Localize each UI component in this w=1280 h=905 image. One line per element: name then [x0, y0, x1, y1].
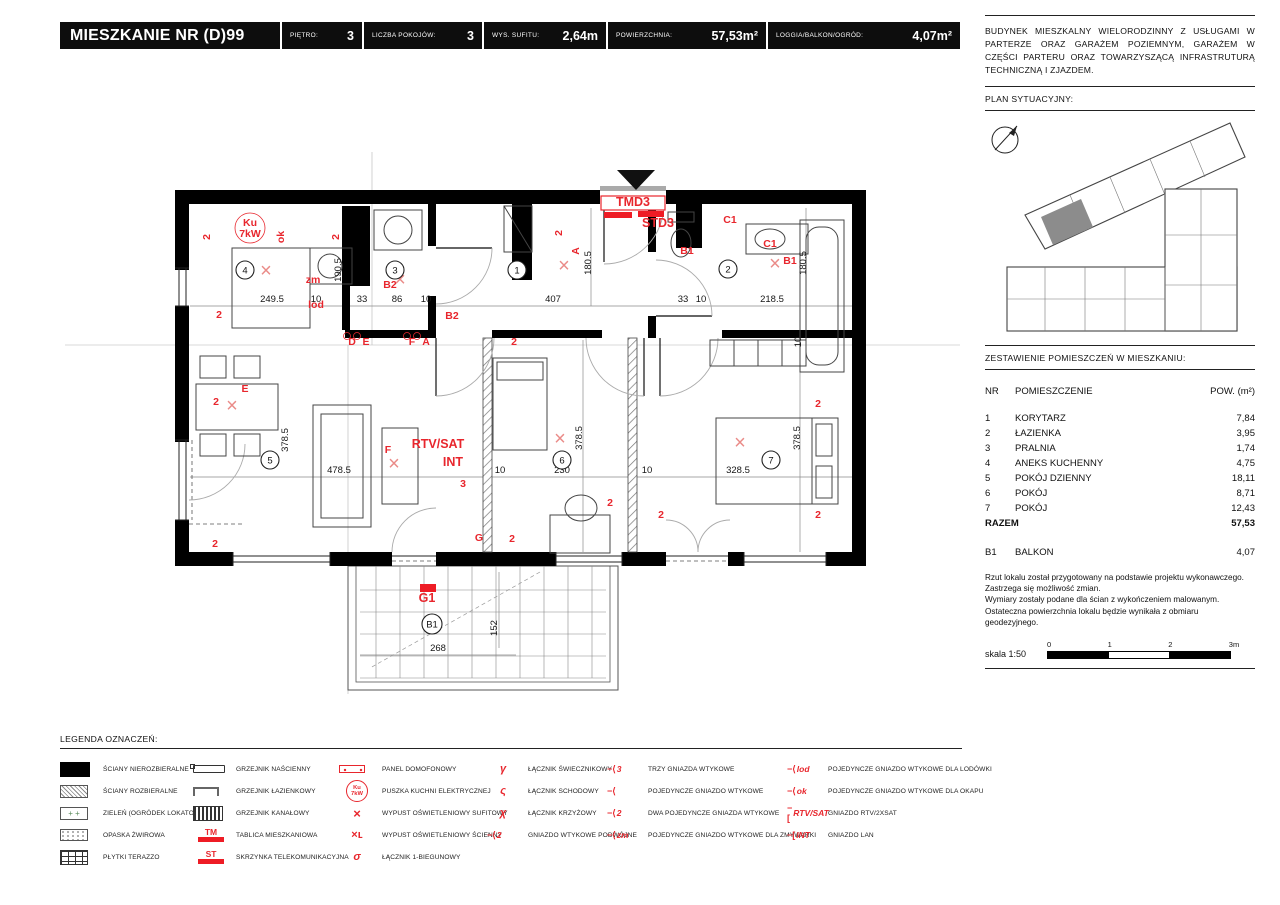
room-marker: 5	[261, 451, 279, 469]
legend-item-label: PANEL DOMOFONOWY	[382, 766, 457, 773]
switch-chandelier-icon: γ	[485, 760, 521, 778]
plan-label: 190.5	[333, 258, 344, 282]
table-row: 7POKÓJ12,43	[985, 501, 1255, 516]
table-row: 3PRALNIA1,74	[985, 441, 1255, 456]
note-line: Rzut lokalu został przygotowany na podst…	[985, 572, 1255, 583]
rooms-table-body: 1KORYTARZ7,842ŁAZIENKA3,953PRALNIA1,744A…	[985, 411, 1255, 516]
col-nr: NR	[985, 386, 1015, 397]
legend-item: χŁĄCZNIK KRZYŻOWY	[485, 802, 605, 824]
legend-column: γŁĄCZNIK ŚWIECZNIKOWYςŁĄCZNIK SCHODOWYχŁ…	[485, 758, 605, 846]
legend-item-label: TABLICA MIESZKANIOWA	[236, 832, 318, 839]
site-plan-title: PLAN SYTUACYJNY:	[985, 94, 1255, 104]
plan-label: 33	[357, 294, 368, 305]
room-nr: 2	[985, 426, 1015, 441]
plan-label: ok	[275, 231, 287, 243]
legend-item-label: POJEDYNCZE GNIAZDO WTYKOWE DLA LODÓWKI	[828, 766, 992, 773]
plan-label: 86	[392, 294, 403, 305]
room-marker: 4	[236, 261, 254, 279]
red-bar-icon: TM	[193, 826, 229, 844]
plan-label: 180.5	[583, 251, 594, 275]
plan-label: 2	[815, 509, 821, 521]
radiator-wall-icon	[193, 765, 225, 773]
legend-item-label: ŁĄCZNIK 1-BIEGUNOWY	[382, 854, 460, 861]
legend-item-label: GRZEJNIK NAŚCIENNY	[236, 766, 311, 773]
rooms-list-title: ZESTAWIENIE POMIESZCZEŃ W MIESZKANIU:	[985, 353, 1255, 363]
plan-label: G1	[419, 591, 436, 605]
svg-text:2: 2	[725, 265, 730, 276]
legend-item-label: DWA POJEDYNCZE GNIAZDA WTYKOWE	[648, 810, 779, 817]
room-nr: 5	[985, 471, 1015, 486]
room-area: 8,71	[1193, 486, 1255, 501]
room-marker: 1	[508, 261, 526, 279]
room-nr: 3	[985, 441, 1015, 456]
windows	[175, 268, 826, 566]
compass-icon	[992, 126, 1018, 153]
legend-item: TMTABLICA MIESZKANIOWA	[193, 824, 339, 846]
divider	[985, 15, 1255, 16]
switch-stairs-icon: ς	[485, 782, 521, 800]
doors	[189, 204, 730, 552]
plan-label: 180.5	[798, 251, 809, 275]
legend-item: ×ʟWYPUST OŚWIETLENIOWY ŚCIENNY	[339, 824, 485, 846]
legend-item-label: ŁĄCZNIK SCHODOWY	[528, 788, 599, 795]
plan-label: ×	[734, 432, 746, 454]
red-bar-icon: ST	[193, 848, 229, 866]
gravel-icon	[60, 829, 88, 841]
legend-item-label: SKRZYNKA TELEKOMUNIKACYJNA	[236, 854, 349, 861]
svg-text:4: 4	[242, 266, 247, 277]
legend-item: γŁĄCZNIK ŚWIECZNIKOWY	[485, 758, 605, 780]
plan-label: E	[241, 383, 248, 395]
plan-label: 249.5	[260, 294, 284, 305]
plan-label: 2	[658, 509, 664, 521]
socket-sq-icon: −[RTV/SAT	[785, 804, 821, 822]
wall-light-icon: ×ʟ	[339, 826, 375, 844]
socket-icon: −⟨ok	[785, 782, 821, 800]
room-name: POKÓJ DZIENNY	[1015, 471, 1193, 486]
socket-icon: −⟨zm	[605, 826, 641, 844]
legend-item-label: ŁĄCZNIK KRZYŻOWY	[528, 810, 597, 817]
svg-text:7: 7	[768, 456, 773, 467]
legend-column: −⟨lodPOJEDYNCZE GNIAZDO WTYKOWE DLA LODÓ…	[785, 758, 962, 846]
table-row: 5POKÓJ DZIENNY18,11	[985, 471, 1255, 486]
scale-label: skala 1:50	[985, 649, 1047, 660]
legend: LEGENDA OZNACZEŃ: ŚCIANY NIEROZBIERALNEŚ…	[60, 734, 962, 868]
col-name: POMIESZCZENIE	[1015, 386, 1193, 397]
plan-label: 218.5	[760, 294, 784, 305]
plan-label: ×	[260, 260, 272, 282]
socket-icon: −⟨lod	[785, 760, 821, 778]
balcony-name: BALKON	[1015, 545, 1193, 560]
legend-item: ŚCIANY NIEROZBIERALNE	[60, 758, 193, 780]
legend-column: PANEL DOMOFONOWYKu 7kWPUSZKA KUCHNI ELEK…	[339, 758, 485, 868]
legend-item: −[INTGNIAZDO LAN	[785, 824, 962, 846]
divider	[985, 668, 1255, 669]
balcony-value: 4,07	[1193, 545, 1255, 560]
tm-bar	[604, 212, 632, 218]
legend-item: GRZEJNIK KANAŁOWY	[193, 802, 339, 824]
col-area: POW. (m²)	[1193, 386, 1255, 397]
legend-item: −⟨POJEDYNCZE GNIAZDO WTYKOWE	[605, 780, 785, 802]
total-label: RAZEM	[985, 516, 1193, 531]
room-name: ŁAZIENKA	[1015, 426, 1193, 441]
table-row: 1KORYTARZ7,84	[985, 411, 1255, 426]
plan-label: C1	[723, 214, 737, 226]
plan-label: 328.5	[726, 465, 750, 476]
legend-item: Ku 7kWPUSZKA KUCHNI ELEKTRYCZNEJ	[339, 780, 485, 802]
plan-label: 2	[216, 309, 222, 321]
legend-columns: ŚCIANY NIEROZBIERALNEŚCIANY ROZBIERALNEZ…	[60, 758, 962, 868]
plan-label: 2	[607, 497, 613, 509]
plan-label: A	[570, 247, 582, 255]
room-nr: 1	[985, 411, 1015, 426]
room-marker: 2	[719, 260, 737, 278]
plan-label: 10	[696, 294, 707, 305]
plan-label: TMD3	[616, 195, 650, 209]
legend-item-label: GRZEJNIK KANAŁOWY	[236, 810, 310, 817]
kitchen-box-icon: Ku 7kW	[339, 782, 375, 800]
room-area: 7,84	[1193, 411, 1255, 426]
balcony	[348, 566, 618, 690]
room-area: 1,74	[1193, 441, 1255, 456]
plan-label: 33	[678, 294, 689, 305]
legend-item: PŁYTKI TERAZZO	[60, 846, 193, 868]
plan-label: 2	[553, 230, 565, 236]
scale-tick: 1	[1108, 640, 1112, 649]
table-row: 2ŁAZIENKA3,95	[985, 426, 1255, 441]
plan-label: B1	[680, 245, 694, 257]
room-area: 18,11	[1193, 471, 1255, 486]
room-area: 3,95	[1193, 426, 1255, 441]
plan-label: 2	[509, 533, 515, 545]
room-marker: 7	[762, 451, 780, 469]
radiator-bath-icon	[193, 787, 219, 796]
radiator-channel-icon	[193, 806, 223, 821]
socket-icon: −⟨2	[485, 826, 521, 844]
room-name: PRALNIA	[1015, 441, 1193, 456]
room-marker: B1	[422, 614, 442, 634]
divider	[985, 86, 1255, 87]
rooms-table-header: NR POMIESZCZENIE POW. (m²)	[985, 386, 1255, 397]
switch-cross-icon: χ	[485, 804, 521, 822]
plan-label: 10	[421, 294, 432, 305]
plan-label: lod	[308, 299, 324, 311]
plan-label: zm	[306, 274, 321, 286]
legend-item: ×WYPUST OŚWIETLENIOWY SUFITOWY	[339, 802, 485, 824]
plan-label: 407	[545, 294, 561, 305]
note-line: Ostateczna powierzchnia lokalu będzie wy…	[985, 606, 1255, 617]
scale-tick: 3m	[1229, 640, 1239, 649]
legend-item: ŚCIANY ROZBIERALNE	[60, 780, 193, 802]
note-line: Zastrzega się możliwość zmian.	[985, 583, 1255, 594]
plan-label: ×	[558, 255, 570, 277]
legend-item-label: PUSZKA KUCHNI ELEKTRYCZNEJ	[382, 788, 491, 795]
plan-label: E	[362, 336, 369, 348]
legend-item: ςŁĄCZNIK SCHODOWY	[485, 780, 605, 802]
plan-label: 2	[212, 538, 218, 550]
plan-label: 2	[213, 396, 219, 408]
svg-text:B1: B1	[426, 620, 438, 631]
legend-item: GRZEJNIK ŁAZIENKOWY	[193, 780, 339, 802]
plan-label: 2	[330, 234, 342, 240]
socket-sq-icon: −[INT	[785, 826, 821, 844]
legend-item: OPASKA ŻWIROWA	[60, 824, 193, 846]
terrazzo-icon	[60, 850, 88, 865]
scale-tick: 0	[1047, 640, 1051, 649]
plan-label: 3	[460, 478, 466, 490]
legend-item-label: TRZY GNIAZDA WTYKOWE	[648, 766, 735, 773]
note-line: geodezyjnego.	[985, 617, 1255, 628]
room-marker: 6	[553, 451, 571, 469]
socket-icon: −⟨	[605, 782, 641, 800]
legend-item: −[RTV/SATGNIAZDO RTV/2XSAT	[785, 802, 962, 824]
disclaimer-notes: Rzut lokalu został przygotowany na podst…	[985, 572, 1255, 629]
socket-icon: −⟨3	[605, 760, 641, 778]
legend-item: −⟨okPOJEDYNCZE GNIAZDO WTYKOWE DLA OKAPU	[785, 780, 962, 802]
plan-label: D	[348, 336, 356, 348]
divider	[985, 369, 1255, 370]
scale-row: skala 1:50 0123m	[985, 638, 1255, 660]
floor-plan-sheet: MIESZKANIE NR (D)99 PIĘTRO: 3 LICZBA POK…	[0, 0, 1280, 905]
plan-label: ×	[226, 395, 238, 417]
plan-label: RTV/SAT	[412, 437, 465, 451]
legend-item-label: GNIAZDO RTV/2XSAT	[828, 810, 897, 817]
note-line: Wymiary zostały podane dla ścian z wykoń…	[985, 594, 1255, 605]
room-area: 12,43	[1193, 501, 1255, 516]
balcony-row: B1 BALKON 4,07	[985, 545, 1255, 560]
divider	[985, 110, 1255, 111]
site-plan	[985, 115, 1255, 343]
legend-item: −⟨zmPOJEDYNCZE GNIAZDO WTYKOWE DLA ZMYWA…	[605, 824, 785, 846]
plan-label: A	[422, 336, 430, 348]
room-marker: 3	[386, 261, 404, 279]
plan-label: 268	[430, 643, 446, 654]
plan-label: B1	[783, 255, 797, 267]
scale-tick: 2	[1168, 640, 1172, 649]
plan-label: 2	[815, 398, 821, 410]
legend-item-label: GRZEJNIK ŁAZIENKOWY	[236, 788, 316, 795]
building-description: BUDYNEK MIESZKALNY WIELORODZINNY Z USŁUG…	[985, 25, 1255, 77]
scale-segments	[1047, 651, 1231, 659]
legend-item: PANEL DOMOFONOWY	[339, 758, 485, 780]
divider	[60, 748, 962, 749]
plan-label: 10	[642, 465, 653, 476]
plan-label: C1	[763, 238, 777, 250]
room-nr: 6	[985, 486, 1015, 501]
legend-column: ŚCIANY NIEROZBIERALNEŚCIANY ROZBIERALNEZ…	[60, 758, 193, 868]
intercom-icon	[339, 765, 365, 773]
legend-item: STSKRZYNKA TELEKOMUNIKACYJNA	[193, 846, 339, 868]
plan-label: ×	[388, 453, 400, 475]
svg-text:1: 1	[514, 266, 519, 277]
plan-label: F	[409, 336, 416, 348]
plan-label: 152	[489, 620, 500, 636]
svg-text:6: 6	[559, 456, 564, 467]
switch-1-icon: σ	[339, 848, 375, 866]
legend-item: σŁĄCZNIK 1-BIEGUNOWY	[339, 846, 485, 868]
svg-text:5: 5	[267, 456, 272, 467]
room-area: 4,75	[1193, 456, 1255, 471]
plan-label: 10	[793, 337, 804, 348]
divider	[985, 345, 1255, 346]
legend-item: −⟨3TRZY GNIAZDA WTYKOWE	[605, 758, 785, 780]
table-total-row: RAZEM 57,53	[985, 516, 1255, 531]
plan-labels: 249.5103386104073310218.5478.51023010328…	[201, 195, 821, 654]
ceiling-light-icon: ×	[339, 804, 375, 822]
socket-icon: −⟨2	[605, 804, 641, 822]
plan-label: INT	[443, 455, 464, 469]
balcony-nr: B1	[985, 545, 1015, 560]
legend-item: −⟨2GNIAZDO WTYKOWE PODWÓJNE	[485, 824, 605, 846]
legend-item-label: ŚCIANY NIEROZBIERALNE	[103, 766, 189, 773]
table-row: 6POKÓJ8,71	[985, 486, 1255, 501]
room-name: KORYTARZ	[1015, 411, 1193, 426]
sidebar: BUDYNEK MIESZKALNY WIELORODZINNY Z USŁUG…	[985, 15, 1255, 669]
plan-label: ×	[554, 428, 566, 450]
legend-item-label: ŚCIANY ROZBIERALNE	[103, 788, 178, 795]
legend-title: LEGENDA OZNACZEŃ:	[60, 734, 962, 744]
scale-bar: 0123m	[1047, 640, 1255, 660]
legend-item: ZIELEŃ (OGRÓDEK LOKATORSKI)	[60, 802, 193, 824]
building-outline	[1007, 123, 1245, 331]
legend-item-label: ŁĄCZNIK ŚWIECZNIKOWY	[528, 766, 612, 773]
room-nr: 7	[985, 501, 1015, 516]
plan-label: G	[475, 532, 483, 544]
plan-label: 10	[495, 465, 506, 476]
legend-item-label: POJEDYNCZE GNIAZDO WTYKOWE	[648, 788, 763, 795]
legend-item-label: PŁYTKI TERAZZO	[103, 854, 160, 861]
legend-item-label: OPASKA ŻWIROWA	[103, 832, 165, 839]
plan-label: STD3	[642, 216, 674, 230]
wall-hatch-icon	[60, 785, 88, 798]
plan-label: 7kW	[239, 228, 261, 240]
room-nr: 4	[985, 456, 1015, 471]
room-name: POKÓJ	[1015, 501, 1193, 516]
legend-item: −⟨lodPOJEDYNCZE GNIAZDO WTYKOWE DLA LODÓ…	[785, 758, 962, 780]
plan-label: 378.5	[280, 428, 291, 452]
room-name: ANEKS KUCHENNY	[1015, 456, 1193, 471]
legend-column: GRZEJNIK NAŚCIENNYGRZEJNIK ŁAZIENKOWYGRZ…	[193, 758, 339, 868]
plan-label: 2	[511, 336, 517, 348]
legend-item: GRZEJNIK NAŚCIENNY	[193, 758, 339, 780]
plan-label: 2	[201, 234, 213, 240]
plan-label: B2	[445, 310, 459, 322]
table-row: 4ANEKS KUCHENNY4,75	[985, 456, 1255, 471]
plan-label: ×	[769, 253, 781, 275]
plan-label: 378.5	[574, 426, 585, 450]
wall-solid-icon	[60, 762, 90, 777]
total-value: 57,53	[1193, 516, 1255, 531]
legend-item: −⟨2DWA POJEDYNCZE GNIAZDA WTYKOWE	[605, 802, 785, 824]
legend-item-label: POJEDYNCZE GNIAZDO WTYKOWE DLA OKAPU	[828, 788, 984, 795]
legend-item-label: GNIAZDO LAN	[828, 832, 874, 839]
plan-label: 478.5	[327, 465, 351, 476]
room-name: POKÓJ	[1015, 486, 1193, 501]
legend-column: −⟨3TRZY GNIAZDA WTYKOWE−⟨POJEDYNCZE GNIA…	[605, 758, 785, 846]
svg-text:3: 3	[392, 266, 397, 277]
plan-label: 378.5	[792, 426, 803, 450]
green-area-icon	[60, 807, 88, 820]
